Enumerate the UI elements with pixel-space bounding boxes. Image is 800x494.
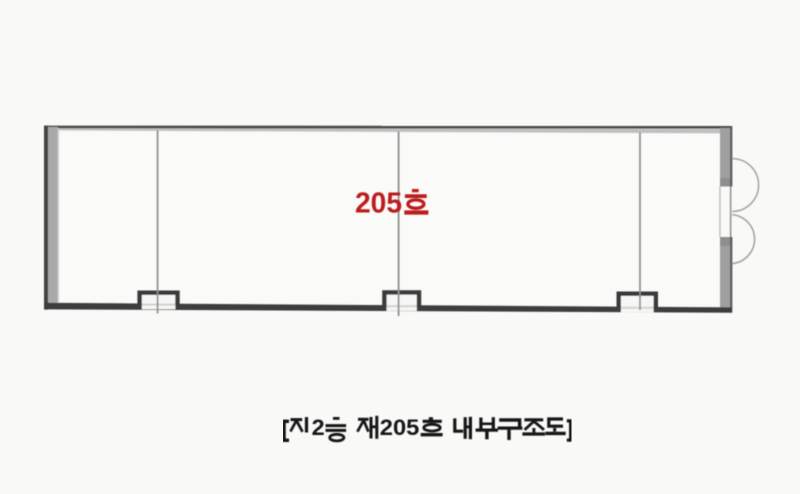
- svg-text:205: 205: [380, 415, 420, 440]
- svg-text:2: 2: [312, 415, 325, 440]
- svg-text:205: 205: [355, 188, 402, 220]
